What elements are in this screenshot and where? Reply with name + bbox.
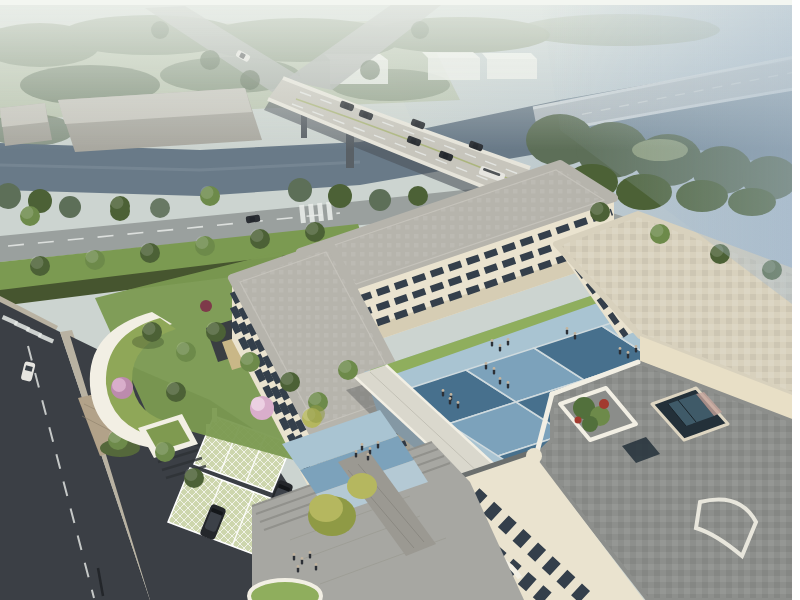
curved-lawn-island xyxy=(249,580,321,600)
frame-border-top xyxy=(0,0,800,5)
planter-red-shrub xyxy=(599,399,609,409)
rounded-corner xyxy=(526,448,542,464)
blossom-tree xyxy=(250,396,274,420)
blossom-tree xyxy=(111,377,133,399)
red-shrub xyxy=(200,300,212,312)
rendering-canvas: Aerial architectural rendering of a crea… xyxy=(0,0,800,600)
frame-border-right xyxy=(792,0,800,600)
aerial-rendering: Aerial architectural rendering of a crea… xyxy=(0,0,800,600)
